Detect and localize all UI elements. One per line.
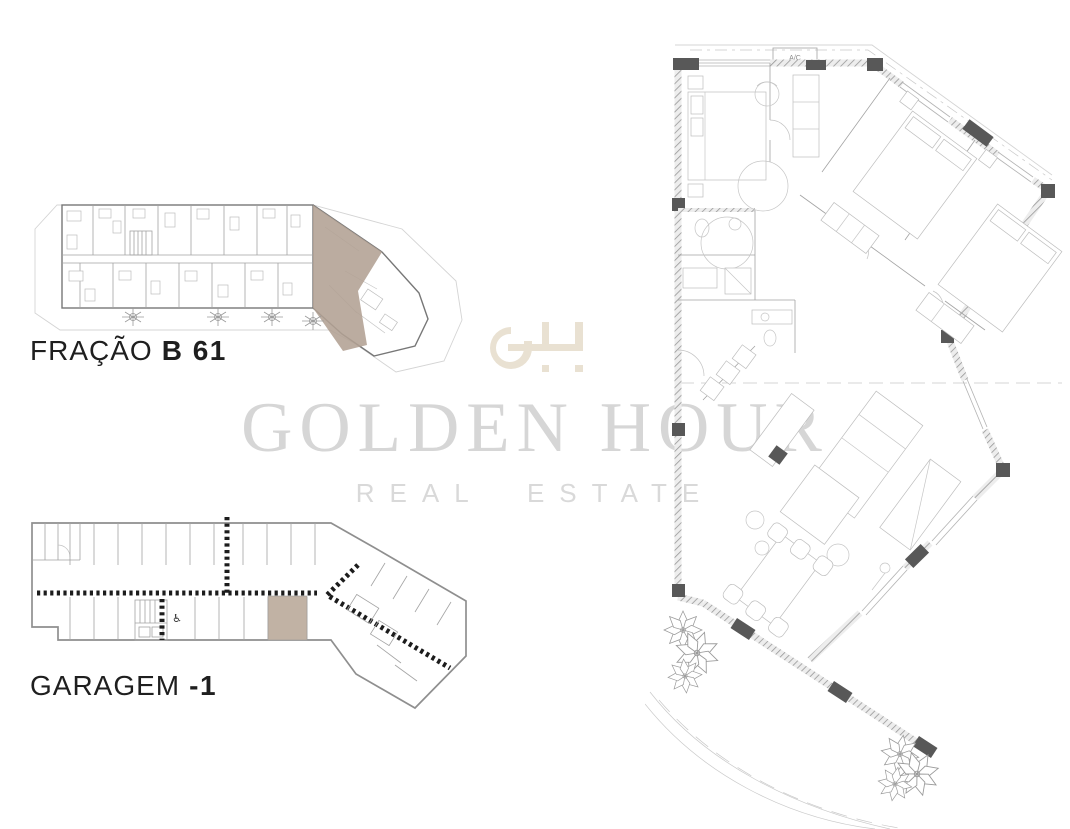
window-step: [963, 379, 987, 429]
window-facade-2: [996, 152, 1033, 182]
accessible-parking-icon: ♿: [172, 612, 182, 625]
parking-spot-highlight: [268, 596, 307, 640]
brand-monogram: [484, 320, 586, 381]
building-trees: [122, 308, 324, 330]
building-unit-partitions: [80, 205, 287, 308]
fraction-label-code: B 61: [162, 335, 227, 366]
garden-trees: [661, 611, 947, 808]
bedroom-2-furniture: [821, 91, 998, 253]
fraction-label: FRAÇÃOB 61: [30, 336, 227, 367]
brochure-page: { "page": { "background": "#ffffff" }, "…: [0, 0, 1070, 829]
bedroom-1-furniture: [688, 75, 819, 197]
garage-label: GARAGEM-1: [30, 671, 217, 702]
fraction-label-prefix: FRAÇÃO: [30, 335, 153, 366]
bedroom-3-furniture: [916, 204, 1062, 343]
unit-b61-highlight-shape: [313, 205, 382, 351]
garage-label-prefix: GARAGEM: [30, 670, 180, 701]
building-corridor: [62, 255, 313, 263]
apartment-floor-plan: A/C: [645, 28, 1070, 829]
gh-monogram-icon: [484, 320, 586, 376]
unit-highlight: [313, 205, 382, 351]
window-top: [688, 60, 770, 66]
garage-label-code: -1: [189, 670, 217, 701]
monogram-shapes: [490, 322, 583, 372]
bathroom-fixtures: [683, 218, 792, 346]
